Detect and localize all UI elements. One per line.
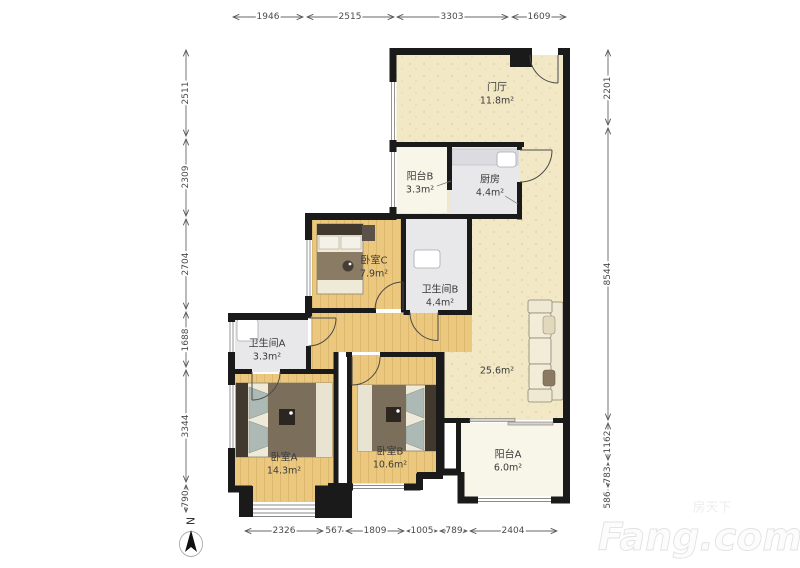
dim-label: 790 [181,490,191,507]
label-bedroom-c-name: 卧室C [361,254,388,267]
bed-a-headboard [236,383,248,457]
sliding-panel [470,419,515,422]
floorplan-canvas: 门厅 11.8m² 阳台B 3.3m² 厨房 4.4m² 卧室C 7.9m² 卫… [0,0,800,568]
window-balcony-b-west [390,152,397,207]
bed-c-blanket [317,252,363,280]
bed-b-headboard [425,385,437,451]
window-bedroom-c-west [305,240,312,296]
label-balcony-a-area: 6.0m² [494,463,522,474]
dim-label: 2511 [181,82,191,105]
label-bedroom-b-name: 卧室B [377,445,404,458]
wall-block-bedroom-divider [328,483,352,518]
bed-c-cushion [343,261,354,272]
window-frame [228,322,235,352]
bed-a-cushion [279,409,295,425]
watermark-brand-cn: 房天下 [692,500,731,516]
label-kitchen-name: 厨房 [480,173,500,186]
dim-label: 1946 [257,12,280,22]
label-living-area: 25.6m² [480,366,514,377]
dimensions-right: 2201 8544 1162 783 586 [603,50,613,509]
dim-label: 2704 [181,252,191,275]
bed-b-cushion-dot [396,409,399,412]
bed-c-headboard [317,224,363,235]
label-bath-a-name: 卫生间A [249,337,286,350]
dim-label: 1809 [364,526,387,536]
window-bath-a-west [228,322,235,352]
bed-a-foot-sheet [316,383,332,457]
sofa-armrest [528,389,552,402]
bed-b-cushion [386,407,401,422]
north-label: N [185,517,198,525]
dim-label: 3303 [441,12,464,22]
bed-bedroom-b [358,385,437,451]
dim-label: 1005 [411,526,434,536]
dimensions-left: 2511 2309 2704 1688 3344 790 [181,50,191,512]
label-bedroom-c-area: 7.9m² [360,269,388,280]
dim-label: 1688 [181,328,191,351]
window-frame [353,484,404,491]
dimensions-bottom: 2326 567 1809 1005 789 2404 [245,526,557,536]
dim-label: 2309 [181,165,191,188]
bed-c-cushion-dot [349,263,352,266]
window-bedroom-b-south [353,484,404,491]
dim-label: 2515 [339,12,362,22]
north-compass: N [180,517,203,557]
dim-label: 783 [603,466,613,483]
bed-c-pillow [319,236,339,249]
bed-a-cushion-dot [289,411,293,415]
label-bedroom-a-area: 14.3m² [267,466,301,477]
bed-bedroom-a [236,383,332,457]
dim-label: 2404 [502,526,525,536]
bed-b-foot-sheet [358,385,372,451]
label-balcony-b-name: 阳台B [407,170,434,183]
wall-block-bay-left [239,486,253,517]
label-bath-a-area: 3.3m² [253,352,281,363]
window-frame [228,385,235,448]
label-bath-b-area: 4.4m² [426,298,454,309]
watermark: 房天下 Fang.com [598,500,800,560]
north-arrow-icon [185,530,197,552]
dim-label: 789 [445,526,462,536]
dim-label: 3344 [181,414,191,437]
window-entry-west [390,82,397,140]
bay-window-bedroom-a [253,502,315,517]
dim-label: 2201 [603,77,613,100]
dim-label: 1162 [603,431,613,454]
window-balcony-a-south [478,497,551,504]
floor-balcony-a [461,423,564,498]
window-bedroom-a-west [228,385,235,448]
window-frame [390,152,397,207]
label-entry-name: 门厅 [487,81,507,94]
dimensions-top: 1946 2515 3303 1609 [233,12,566,22]
bed-c-pillow [341,236,361,249]
label-bath-b-name: 卫生间B [422,283,459,296]
label-bedroom-a-name: 卧室A [271,451,298,464]
label-bedroom-b-area: 10.6m² [373,460,407,471]
watermark-brand-en: Fang.com [598,515,800,559]
window-frame [305,240,312,296]
floorplan-page: 门厅 11.8m² 阳台B 3.3m² 厨房 4.4m² 卧室C 7.9m² 卫… [0,0,800,568]
nightstand-c [362,225,375,241]
kitchen-sink [497,152,516,167]
bath-b-basin [414,250,440,268]
dim-label: 8544 [603,262,613,285]
dim-label: 2326 [273,526,296,536]
window-frame [390,82,397,140]
dim-label: 586 [603,491,613,508]
sofa-cushion [529,338,551,364]
sliding-panel [508,422,553,425]
sofa [528,300,563,402]
wall-block-entry-step [510,48,532,67]
label-kitchen-area: 4.4m² [476,188,504,199]
label-balcony-a-name: 阳台A [495,448,522,461]
label-entry-area: 11.8m² [480,96,514,107]
dim-label: 1609 [528,12,551,22]
window-frame [478,497,551,504]
label-balcony-b-area: 3.3m² [406,185,434,196]
sofa-pillow [543,316,555,334]
window-frame [253,502,315,517]
sofa-pillow [543,370,555,386]
sofa-armrest [528,300,552,313]
dim-label: 567 [325,526,342,536]
